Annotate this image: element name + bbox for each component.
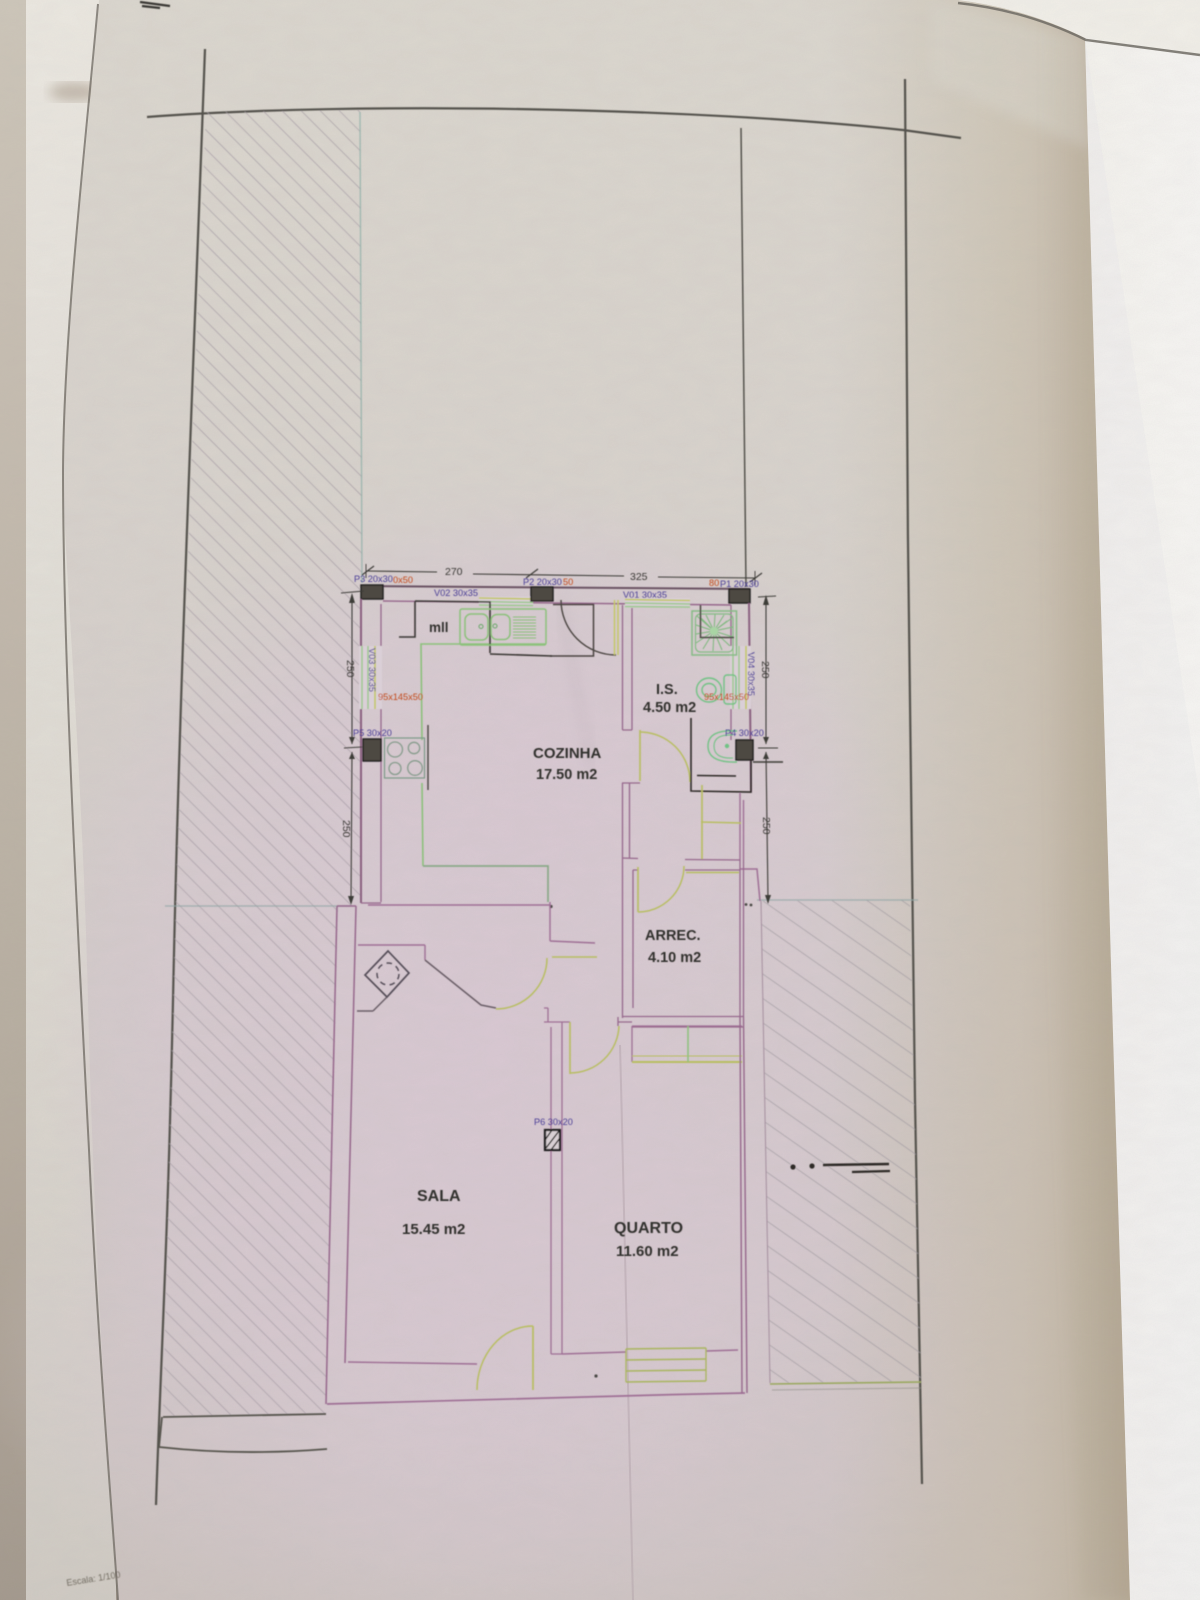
svg-text:SALA: SALA: [417, 1188, 461, 1205]
svg-text:P4 30x20: P4 30x20: [725, 728, 764, 738]
svg-text:250: 250: [344, 660, 356, 678]
svg-text:ARREC.: ARREC.: [645, 928, 701, 944]
svg-text:P3 20x30: P3 20x30: [354, 574, 393, 584]
svg-text:270: 270: [445, 566, 463, 578]
svg-text:COZINHA: COZINHA: [533, 745, 601, 762]
svg-text:80: 80: [709, 578, 719, 588]
svg-text:V01 30x35: V01 30x35: [623, 590, 667, 600]
svg-text:QUARTO: QUARTO: [614, 1220, 683, 1237]
svg-text:50: 50: [563, 577, 573, 587]
svg-text:4.50 m2: 4.50 m2: [643, 700, 696, 716]
svg-text:I.S.: I.S.: [656, 682, 678, 698]
svg-text:15.45 m2: 15.45 m2: [402, 1221, 465, 1238]
svg-text:17.50 m2: 17.50 m2: [536, 767, 597, 783]
svg-text:P1 20x30: P1 20x30: [720, 579, 759, 589]
svg-text:P5 30x20: P5 30x20: [353, 728, 392, 738]
svg-text:11.60 m2: 11.60 m2: [616, 1243, 679, 1260]
svg-text:0x50: 0x50: [393, 575, 413, 585]
svg-text:P2 20x30: P2 20x30: [523, 577, 562, 587]
svg-text:4.10 m2: 4.10 m2: [648, 950, 701, 966]
svg-text:95x145x50: 95x145x50: [704, 692, 749, 702]
svg-text:V02 30x35: V02 30x35: [434, 588, 478, 598]
svg-text:250: 250: [340, 820, 352, 838]
svg-text:V04 30x35: V04 30x35: [746, 652, 756, 696]
svg-text:mll: mll: [429, 620, 449, 635]
svg-text:325: 325: [630, 571, 648, 583]
svg-text:250: 250: [759, 661, 771, 679]
svg-text:95x145x50: 95x145x50: [378, 692, 423, 702]
svg-text:250: 250: [760, 817, 772, 835]
svg-text:V03 30x35: V03 30x35: [367, 648, 377, 692]
svg-text:P6 30x20: P6 30x20: [534, 1117, 573, 1127]
